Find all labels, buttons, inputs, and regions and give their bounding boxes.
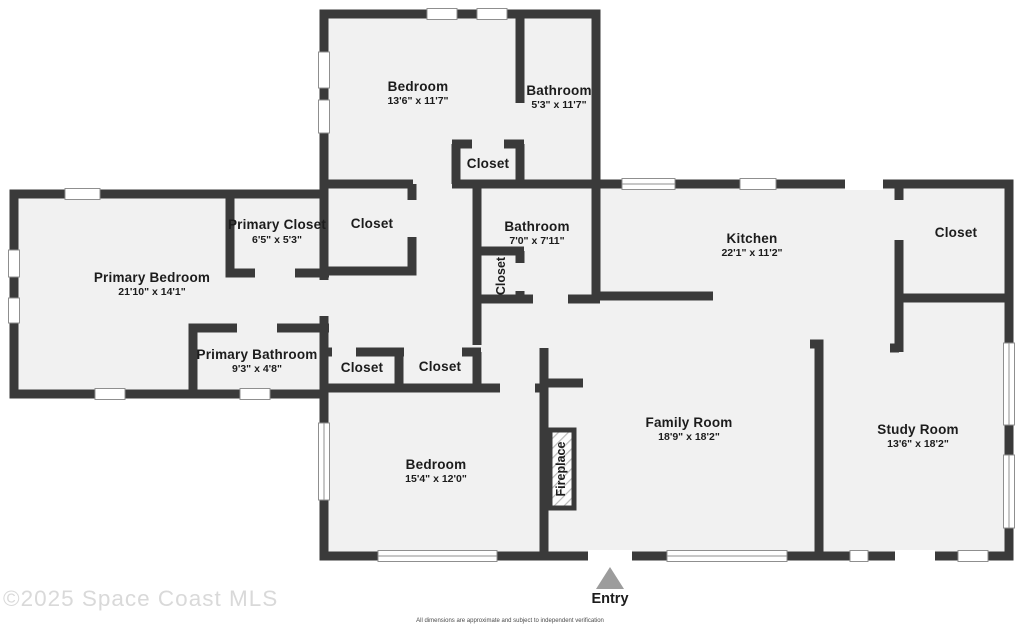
bathroom-top-name: Bathroom <box>526 83 591 98</box>
primary-bedroom-dims: 21'10" x 14'1" <box>118 286 186 298</box>
bedroom-top-name: Bedroom <box>388 79 449 94</box>
primary-bedroom-name: Primary Bedroom <box>94 270 210 285</box>
watermark: ©2025 Space Coast MLS <box>3 586 278 611</box>
primary-bathroom-dims: 9'3" x 4'8" <box>232 363 282 375</box>
bedroom-top-dims: 13'6" x 11'7" <box>387 95 448 107</box>
bedroom-lower-name: Bedroom <box>406 457 467 472</box>
kitchen-dims: 22'1" x 11'2" <box>721 247 782 259</box>
fireplace-label: Fireplace <box>554 442 568 497</box>
entry-arrow-icon <box>596 567 624 589</box>
entry-label: Entry <box>591 591 628 607</box>
floor-plan-page: Fireplace Bedroom 13'6" x 11'7" Bathroom… <box>0 0 1024 626</box>
family-room-dims: 18'9" x 18'2" <box>658 431 720 443</box>
primary-closet-name: Primary Closet <box>228 217 326 232</box>
primary-bathroom-name: Primary Bathroom <box>197 347 318 362</box>
floor-area <box>14 14 1009 556</box>
bedroom-lower-dims: 15'4" x 12'0" <box>405 473 467 485</box>
floor-plan: Fireplace Bedroom 13'6" x 11'7" Bathroom… <box>0 0 1024 626</box>
bathroom-mid-dims: 7'0" x 7'11" <box>509 235 564 247</box>
study-room-dims: 13'6" x 18'2" <box>887 438 949 450</box>
primary-closet-dims: 6'5" x 5'3" <box>252 234 302 246</box>
closet-hall-left-label: Closet <box>341 360 384 375</box>
bathroom-closet-label: Closet <box>494 256 508 295</box>
closet-hall-right-label: Closet <box>419 359 462 374</box>
closet-right-label: Closet <box>935 225 978 240</box>
study-room-name: Study Room <box>877 422 959 437</box>
closet-top-label: Closet <box>467 156 510 171</box>
family-room-name: Family Room <box>646 415 733 430</box>
kitchen-name: Kitchen <box>727 231 778 246</box>
closet-mid-label: Closet <box>351 216 394 231</box>
bathroom-mid-name: Bathroom <box>504 219 569 234</box>
bathroom-top-dims: 5'3" x 11'7" <box>531 99 586 111</box>
disclaimer-text: All dimensions are approximate and subje… <box>416 618 604 624</box>
